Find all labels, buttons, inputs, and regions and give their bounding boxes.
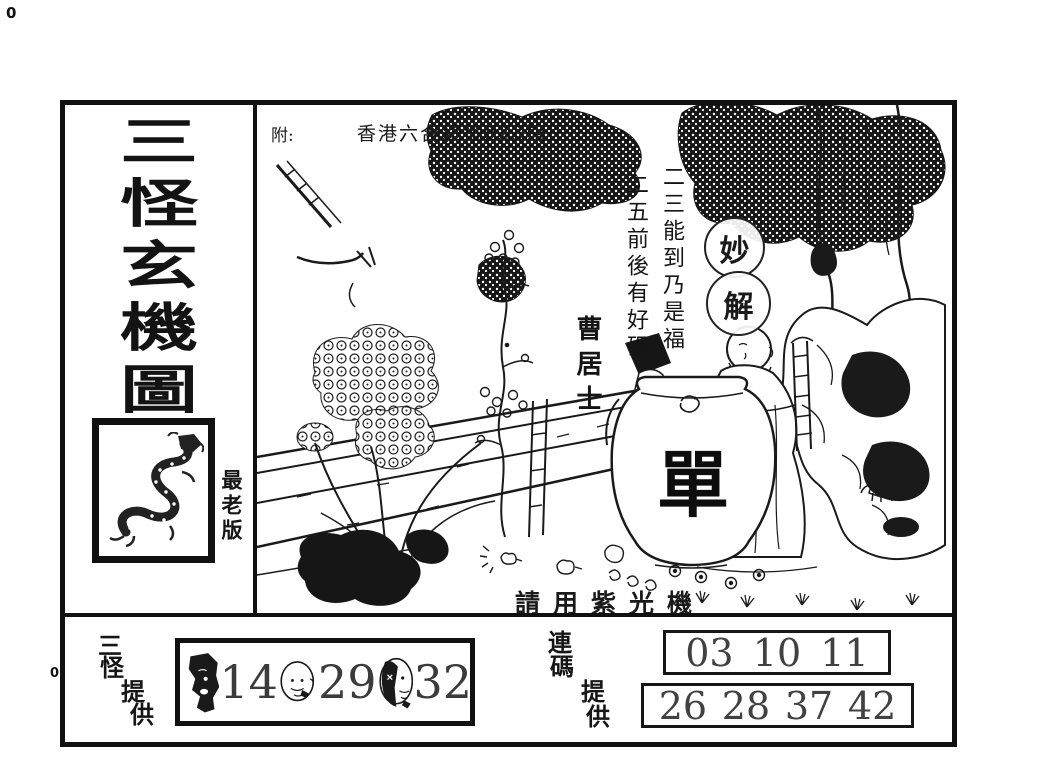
title-char: 圖	[120, 365, 198, 417]
monster-number: 32	[413, 659, 472, 705]
lottery-number: 10	[753, 634, 801, 672]
scanned-lottery-sheet: 0 0 三 怪 玄 機 圖	[0, 0, 1045, 758]
lottery-number: 42	[848, 687, 896, 725]
monster-face-3-icon	[377, 649, 414, 715]
title-char: 三	[120, 117, 198, 169]
issue-title: 香港六合彩第023期	[357, 119, 546, 146]
lottery-number: 26	[659, 687, 707, 725]
monster-face-2-icon	[278, 654, 318, 710]
attachment-prefix: 附:	[271, 121, 294, 146]
dragon-icon	[104, 432, 204, 550]
linked-numbers-row-1: 03 10 11	[663, 630, 891, 675]
poem-line-1: 二三能到乃是福	[655, 165, 687, 354]
right-provider-char: 供	[586, 705, 610, 729]
dragon-emblem-box	[92, 418, 215, 563]
title-char: 機	[120, 303, 198, 355]
title-char: 怪	[120, 179, 198, 231]
lottery-number: 03	[685, 634, 733, 672]
slope-marks	[277, 161, 375, 307]
right-provider-char: 提	[581, 680, 605, 704]
seal-circle-jie: 解	[706, 271, 771, 336]
linked-numbers-row-2: 26 28 37 42	[641, 683, 914, 728]
sheet-title: 三 怪 玄 機 圖	[65, 117, 253, 417]
sheet-frame: 三 怪 玄 機 圖	[60, 100, 957, 747]
title-sidebar: 三 怪 玄 機 圖	[65, 105, 257, 613]
upper-section: 三 怪 玄 機 圖	[65, 105, 952, 613]
tips-strip: 三 怪 提 供 14 29	[65, 613, 952, 742]
scan-corner-mark: 0	[6, 4, 16, 22]
uv-light-note: 請用紫光機	[515, 584, 705, 613]
signature: 曹居士	[569, 315, 606, 420]
lottery-number: 28	[722, 687, 770, 725]
lottery-number: 37	[785, 687, 833, 725]
monster-number: 29	[318, 659, 377, 705]
monster-number: 14	[219, 659, 278, 705]
title-char: 玄	[120, 241, 198, 293]
grass-tufts	[696, 591, 919, 610]
illustration-panel: 附: 香港六合彩第023期 二三能到乃是福 二五前後有好碼 妙 解 曹居士 單 …	[257, 105, 952, 613]
seal-circle-miao: 妙	[704, 217, 765, 278]
scan-margin-mark: 0	[50, 666, 59, 681]
edition-label: 最老版	[216, 469, 246, 544]
jar-character: 單	[657, 449, 729, 521]
monster-numbers-box: 14 29 32	[175, 638, 475, 726]
poem-line-2: 二五前後有好碼	[619, 173, 651, 362]
left-provider-char: 供	[130, 703, 154, 727]
right-provider-char: 碼	[550, 655, 574, 679]
lottery-number: 11	[820, 634, 868, 672]
monster-face-1-icon	[184, 644, 219, 720]
